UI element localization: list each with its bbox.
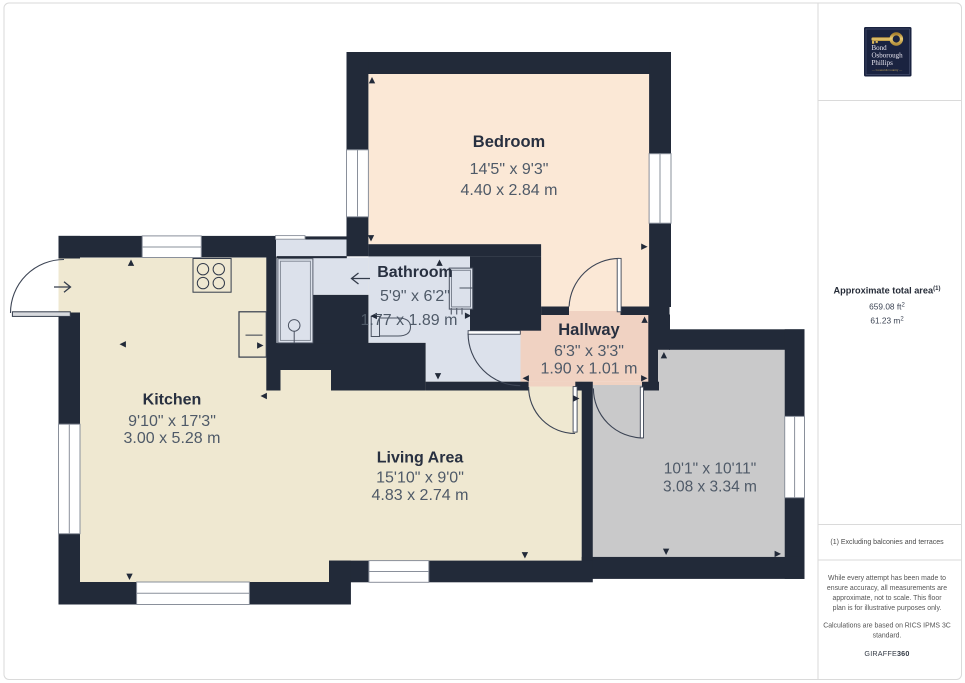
svg-text:ensure accuracy, all measureme: ensure accuracy, all measurements are xyxy=(827,585,947,592)
svg-text:15'10" x 9'0": 15'10" x 9'0" xyxy=(376,470,464,487)
svg-text:Kitchen: Kitchen xyxy=(143,392,202,409)
svg-text:1.90 x 1.01 m: 1.90 x 1.01 m xyxy=(541,361,638,378)
svg-text:6'3" x 3'3": 6'3" x 3'3" xyxy=(554,343,624,360)
svg-text:5'9" x 6'2": 5'9" x 6'2" xyxy=(380,288,450,305)
svg-text:10'1" x 10'11": 10'1" x 10'11" xyxy=(664,461,756,478)
svg-text:Living Area: Living Area xyxy=(377,450,464,467)
svg-text:standard.: standard. xyxy=(873,633,902,640)
svg-text:GIRAFFE360: GIRAFFE360 xyxy=(864,649,909,658)
svg-text:Calculations are based on RICS: Calculations are based on RICS IPMS 3C xyxy=(823,623,951,630)
svg-text:14'5" x 9'3": 14'5" x 9'3" xyxy=(470,161,549,178)
svg-text:approximate, not to scale. Thi: approximate, not to scale. This floor xyxy=(832,595,942,602)
svg-text:1.77 x 1.89 m: 1.77 x 1.89 m xyxy=(361,312,458,329)
svg-text:659.08 ft2: 659.08 ft2 xyxy=(869,302,905,312)
svg-text:plan is for illustrative purpo: plan is for illustrative purposes only. xyxy=(833,605,942,612)
svg-text:Bedroom: Bedroom xyxy=(473,133,545,151)
svg-text:3.00 x 5.28 m: 3.00 x 5.28 m xyxy=(124,430,221,447)
svg-text:4.40 x 2.84 m: 4.40 x 2.84 m xyxy=(461,182,558,199)
svg-text:3.08 x 3.34 m: 3.08 x 3.34 m xyxy=(663,479,757,496)
svg-text:61.23 m2: 61.23 m2 xyxy=(870,316,904,326)
svg-text:Approximate total area(1): Approximate total area(1) xyxy=(834,286,941,296)
svg-text:(1) Excluding balconies and te: (1) Excluding balconies and terraces xyxy=(830,539,944,546)
svg-text:While every attempt has been m: While every attempt has been made to xyxy=(828,575,946,582)
svg-text:Phillips: Phillips xyxy=(872,59,894,67)
svg-text:Bathroom: Bathroom xyxy=(377,264,453,281)
svg-text:9'10" x 17'3": 9'10" x 17'3" xyxy=(128,413,216,430)
svg-text:— Coastal & Country —: — Coastal & Country — xyxy=(871,68,903,72)
svg-text:Hallway: Hallway xyxy=(558,321,620,339)
svg-text:4.83 x 2.74 m: 4.83 x 2.74 m xyxy=(372,487,469,504)
